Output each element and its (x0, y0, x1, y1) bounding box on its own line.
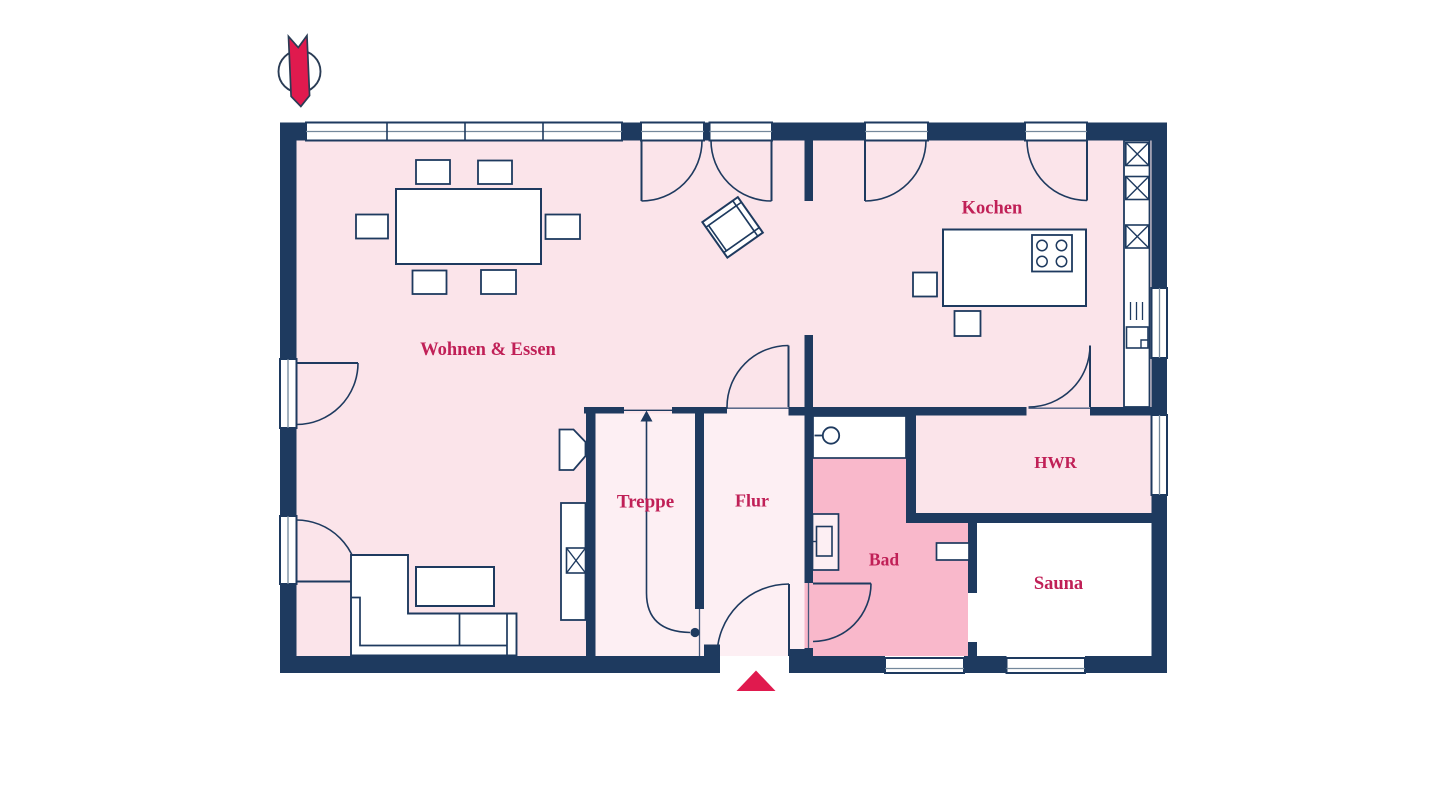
svg-text:Kochen: Kochen (962, 199, 1023, 219)
svg-text:HWR: HWR (1034, 453, 1077, 472)
svg-text:Wohnen & Essen: Wohnen & Essen (420, 340, 556, 360)
svg-text:Flur: Flur (735, 491, 769, 511)
svg-text:Sauna: Sauna (1034, 574, 1083, 594)
svg-text:Bad: Bad (869, 550, 899, 570)
svg-text:Treppe: Treppe (617, 492, 674, 513)
